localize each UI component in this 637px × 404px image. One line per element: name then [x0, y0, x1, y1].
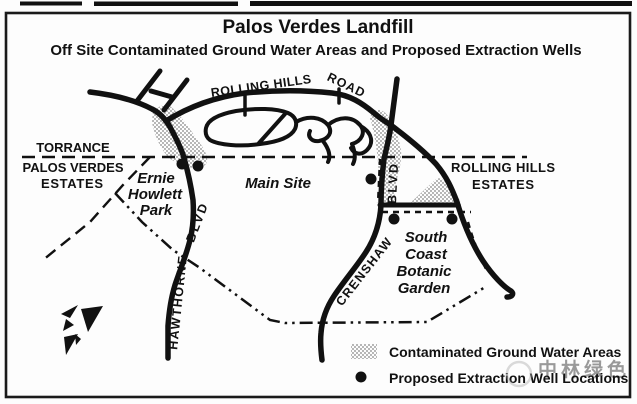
- extraction-well-marker: [177, 159, 188, 170]
- label-palos-verdes-estates-2: ESTATES: [41, 176, 103, 191]
- landfill-map-figure: Palos Verdes Landfill Off Site Contamina…: [0, 0, 637, 404]
- scan-artifact-bar: [20, 1, 632, 6]
- label-coast: Coast: [405, 246, 448, 263]
- legend-well-marker: [356, 372, 367, 383]
- map-canvas: Palos Verdes Landfill Off Site Contamina…: [0, 0, 637, 404]
- extraction-well-marker: [447, 214, 458, 225]
- legend-contaminated-swatch: [351, 344, 377, 359]
- figure-subtitle: Off Site Contaminated Ground Water Areas…: [50, 42, 581, 59]
- label-torrance: TORRANCE: [36, 140, 110, 155]
- label-palos-verdes-estates-1: PALOS VERDES: [23, 160, 124, 175]
- label-garden: Garden: [398, 280, 451, 297]
- label-park: Park: [140, 202, 173, 219]
- label-howlett: Howlett: [128, 186, 183, 203]
- extraction-well-marker: [389, 214, 400, 225]
- label-rolling-hills-estates-2: ESTATES: [472, 177, 534, 192]
- watermark-text: 中林绿色: [538, 358, 630, 381]
- figure-title: Palos Verdes Landfill: [222, 17, 413, 38]
- label-south: South: [405, 229, 448, 246]
- label-rolling-hills-estates-1: ROLLING HILLS: [451, 160, 555, 175]
- label-main-site: Main Site: [245, 175, 311, 192]
- extraction-well-marker: [193, 161, 204, 172]
- label-ernie: Ernie: [137, 170, 175, 187]
- label-botanic: Botanic: [396, 263, 452, 280]
- extraction-well-marker: [366, 174, 377, 185]
- label-crenshaw-blvd: BLVD: [385, 164, 401, 205]
- legend-contaminated-label: Contaminated Ground Water Areas: [389, 344, 622, 360]
